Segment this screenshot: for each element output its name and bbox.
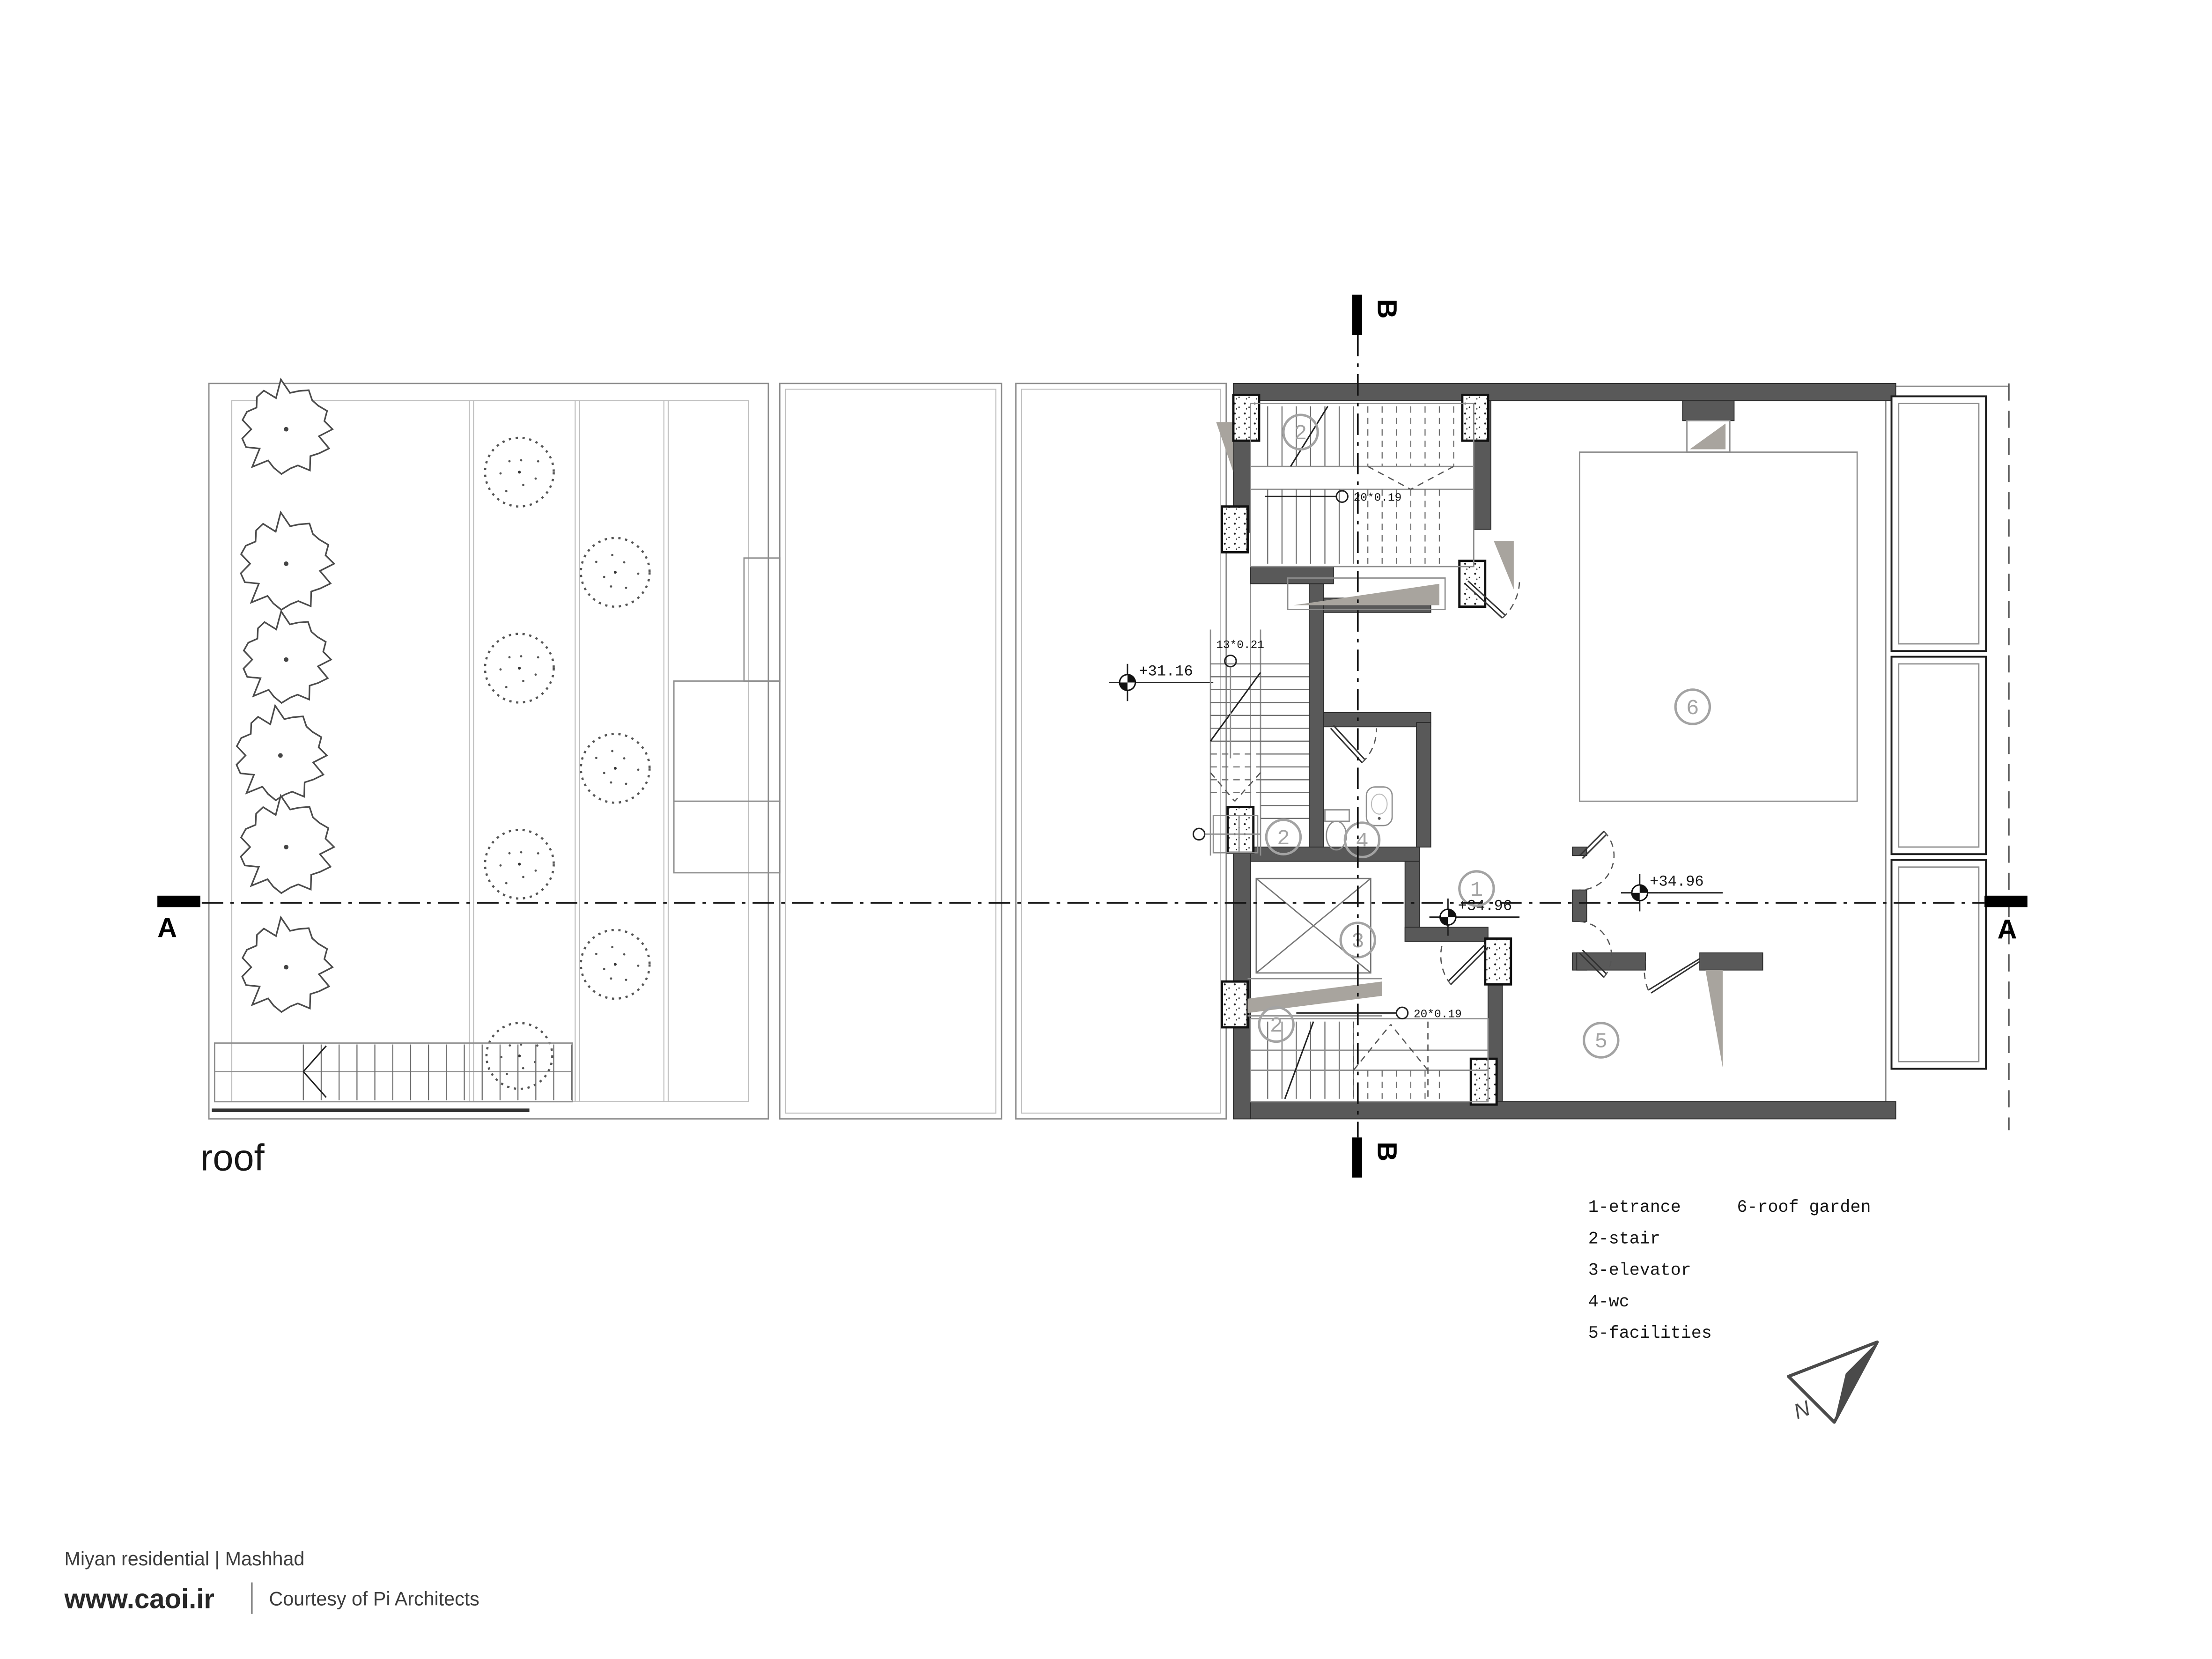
footer: Miyan residential | Mashhad www.caoi.ir … (64, 1548, 479, 1615)
level-marker: +31.16 (1109, 663, 1213, 701)
legend-item: 1-etrance (1588, 1198, 1681, 1217)
tree-icon (241, 796, 334, 893)
shade-wedge (1216, 422, 1233, 472)
room-marker: 1 (1460, 871, 1494, 906)
building-walls (1216, 383, 1895, 1119)
room-marker: 5 (1584, 1023, 1618, 1057)
north-arrow-icon: N (1789, 1342, 1877, 1423)
room-marker: 2 (1259, 1007, 1293, 1041)
column-icon (1460, 561, 1485, 607)
svg-text:2: 2 (1294, 421, 1307, 446)
door (1331, 725, 1377, 762)
legend-item: 6-roof garden (1737, 1198, 1871, 1217)
bottom-stair-note: 20*0.19 (1414, 1009, 1462, 1021)
mid-stair-note: 13*0.21 (1216, 639, 1264, 652)
shrub-icon (581, 734, 650, 803)
skylight-outline (1579, 452, 1857, 802)
column-icon (1222, 507, 1248, 553)
floor-plan-page: +31.16 (0, 0, 2212, 1658)
legend-item: 5-facilities (1588, 1324, 1712, 1343)
room-marker: 2 (1266, 820, 1300, 854)
room-marker: 4 (1345, 823, 1379, 857)
roof-garden-level: +34.96 (1650, 873, 1704, 890)
door (1579, 831, 1614, 890)
svg-text:5: 5 (1594, 1030, 1607, 1054)
section-line-b: B B (1352, 295, 1402, 1177)
shrub-icon (581, 538, 650, 607)
garden-exterior-stair (212, 1043, 572, 1111)
flat-roof-level: +31.16 (1139, 663, 1193, 680)
stair-note: 20*0.19 (1265, 491, 1401, 504)
shrub-icon (581, 930, 650, 999)
legend: 1-etrance 2-stair 3-elevator 4-wc 5-faci… (1588, 1198, 1871, 1343)
project-name: Miyan residential | Mashhad (65, 1548, 305, 1570)
shrub-icon (487, 1023, 553, 1089)
entrance-level: +34.96 (1458, 897, 1512, 914)
roof-garden: 6 +34.96 (1621, 690, 1723, 912)
tree-icon (243, 612, 331, 703)
column-icon (1485, 938, 1511, 984)
svg-text:1: 1 (1470, 878, 1483, 902)
svg-text:2: 2 (1277, 826, 1290, 851)
section-label-b-top: B (1372, 299, 1402, 319)
column-icon (1471, 1059, 1497, 1105)
door (1644, 959, 1700, 993)
tree-icon (241, 512, 334, 610)
room-marker: 6 (1675, 690, 1710, 724)
shrub-icon (485, 634, 554, 703)
balcony-planters (1892, 383, 2009, 1130)
bottom-stair: 20*0.19 2 (1251, 944, 1488, 1102)
tree-icon (242, 917, 332, 1012)
section-label-a-left: A (157, 913, 177, 943)
planting-strips (469, 401, 668, 1102)
legend-item: 4-wc (1588, 1292, 1630, 1312)
tree-icon (242, 379, 332, 474)
door (1441, 944, 1488, 985)
credit: Courtesy of Pi Architects (269, 1588, 479, 1609)
site-logo[interactable]: www.caoi.ir (64, 1584, 214, 1615)
level-marker: +34.96 (1621, 873, 1723, 911)
svg-text:6: 6 (1686, 696, 1699, 721)
roof-plan-drawing: +31.16 (0, 0, 2212, 1658)
column-icon (1462, 395, 1488, 441)
drawing-title: roof (200, 1137, 265, 1179)
sink-icon (1366, 787, 1392, 826)
middle-flat-roofs: +31.16 (674, 383, 1226, 1119)
facilities-room: 5 (1584, 959, 1700, 1057)
section-label-b-bottom: B (1372, 1142, 1402, 1161)
top-stair-note: 20*0.19 (1354, 492, 1402, 504)
column-icon (1233, 395, 1259, 441)
legend-item: 3-elevator (1588, 1261, 1691, 1281)
column-icon (1222, 981, 1248, 1027)
section-line-a: A A (157, 896, 2028, 945)
legend-item: 2-stair (1588, 1229, 1660, 1249)
garden-block (209, 379, 768, 1119)
tree-icon (236, 706, 327, 800)
section-label-a-right: A (1998, 914, 2017, 944)
column-icon (1228, 807, 1253, 853)
stair-note: 13*0.21 (1216, 639, 1264, 758)
shrub-icon (485, 438, 554, 507)
svg-text:2: 2 (1270, 1014, 1283, 1038)
shrub-icon (485, 830, 554, 899)
